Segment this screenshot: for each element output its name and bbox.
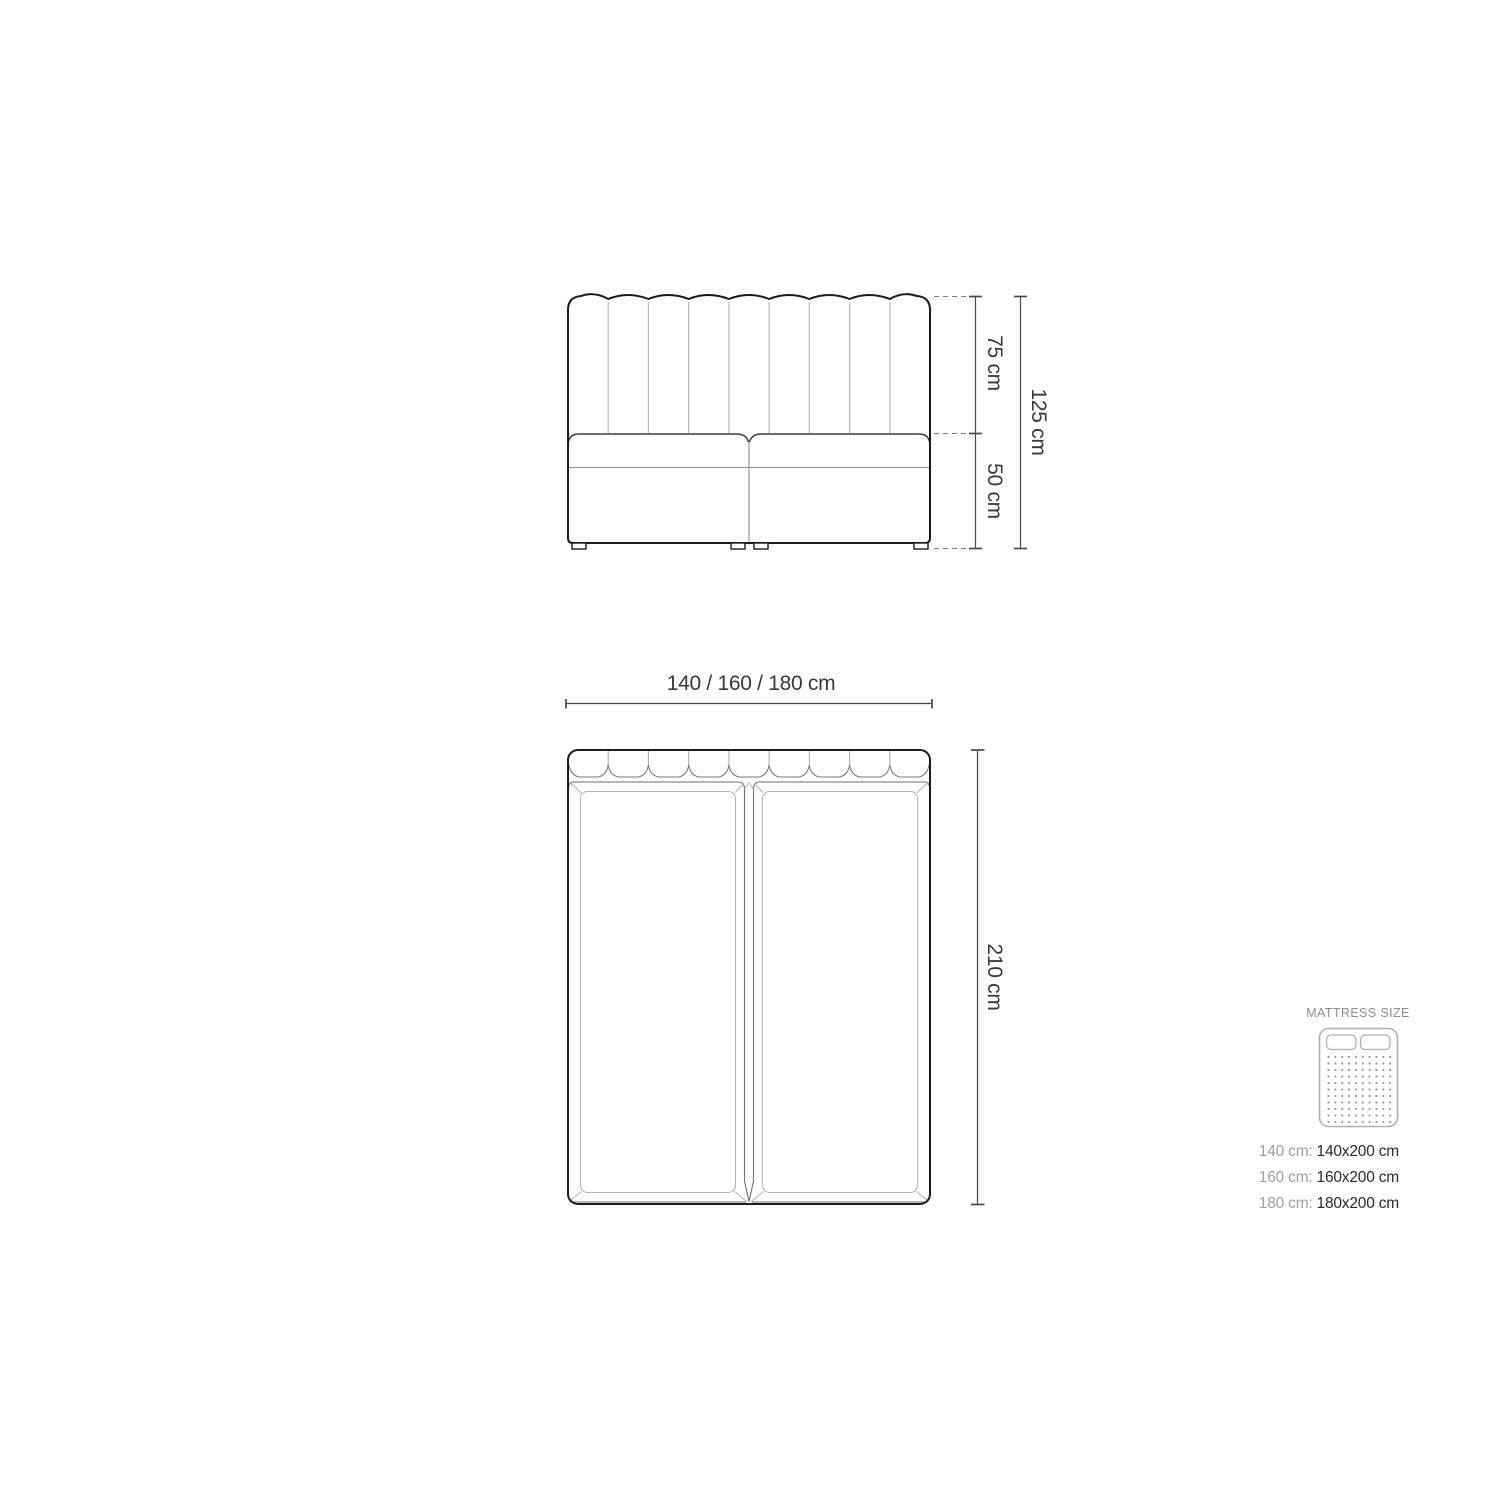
bed-dimension-diagram: 75 cm 50 cm 125 cm 140 / 160 / 180 cm 21… <box>0 0 1500 1500</box>
front-lower-height-label: 50 cm <box>982 463 1006 519</box>
mattress-size-list: 140 cm:140x200 cm 160 cm:160x200 cm 180 … <box>1200 1139 1399 1217</box>
mattress-size-row-160: 160 cm:160x200 cm <box>1200 1165 1399 1191</box>
size-label: 140 cm: <box>1259 1143 1313 1160</box>
front-headboard-outline <box>568 294 930 433</box>
top-length-label: 210 cm <box>982 943 1006 1010</box>
front-view <box>568 294 1027 549</box>
front-dashed-extension-lines <box>934 297 971 549</box>
mattress-size-row-180: 180 cm:180x200 cm <box>1200 1191 1399 1217</box>
top-mattress-inner-rects <box>581 792 918 1193</box>
front-upper-height-label: 75 cm <box>982 335 1006 391</box>
size-value: 160x200 cm <box>1317 1169 1399 1186</box>
front-total-height-label: 125 cm <box>1026 388 1050 455</box>
mattress-size-icon <box>1320 1029 1398 1127</box>
top-view <box>566 699 985 1205</box>
size-label: 160 cm: <box>1259 1169 1313 1186</box>
top-headboard-dividers <box>608 751 890 765</box>
size-value: 140x200 cm <box>1317 1143 1399 1160</box>
top-mattress-miter-lines <box>570 783 928 1202</box>
front-inner-lines <box>568 442 930 543</box>
diagram-linework <box>0 0 1500 1500</box>
size-label: 180 cm: <box>1259 1195 1313 1212</box>
top-mattress-halves-outline <box>569 782 929 1202</box>
mattress-size-title: MATTRESS SIZE <box>1278 1006 1438 1020</box>
top-width-label: 140 / 160 / 180 cm <box>667 672 836 696</box>
top-width-dim-line <box>566 699 932 709</box>
size-value: 180x200 cm <box>1317 1195 1399 1212</box>
front-headboard-channel-dividers <box>608 302 890 433</box>
mattress-size-row-140: 140 cm:140x200 cm <box>1200 1139 1399 1165</box>
top-bed-outline <box>568 750 930 1204</box>
top-headboard-channel-bottoms <box>569 765 929 777</box>
